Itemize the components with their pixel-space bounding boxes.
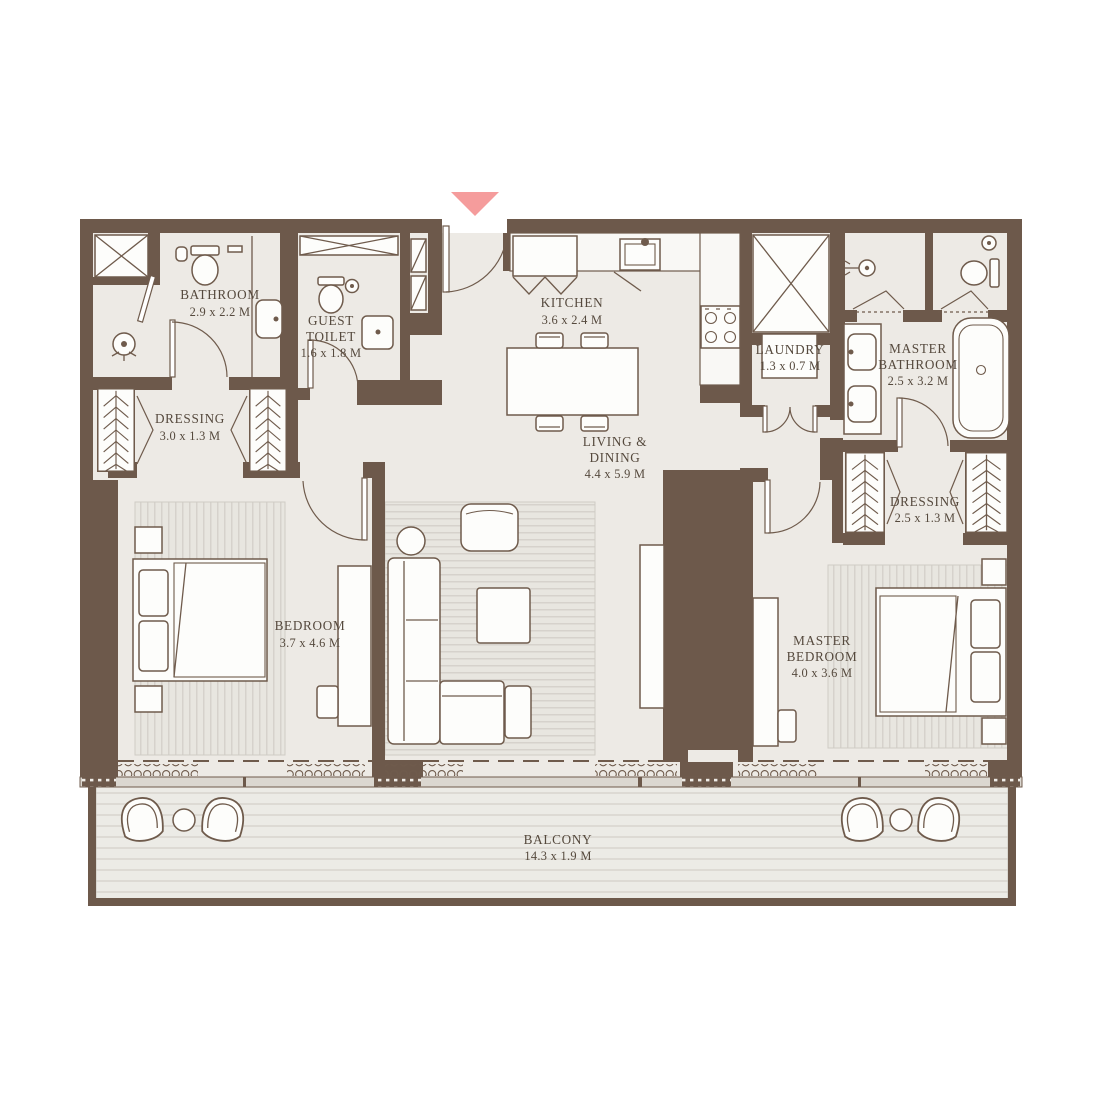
curtain-icon: [925, 764, 987, 776]
nightstand-icon: [982, 718, 1006, 744]
basin-icon: [848, 386, 876, 422]
bed-icon: [133, 559, 267, 681]
room-label-master-bathroom: MASTER: [889, 341, 947, 356]
patio-table-icon: [890, 809, 912, 831]
room-dims-bedroom: 3.7 x 4.6 M: [280, 636, 341, 650]
room-label-dressing-right: DRESSING: [890, 494, 960, 509]
room-label-balcony: BALCONY: [524, 832, 593, 847]
window-sill: [80, 777, 1022, 787]
round-sink-icon: [346, 280, 359, 293]
curtain-icon: [118, 764, 198, 776]
room-label-bedroom: BEDROOM: [275, 618, 346, 633]
room-label-master-bedroom: MASTER: [793, 633, 851, 648]
chair-icon: [536, 416, 563, 431]
shaft-icon: [753, 235, 829, 332]
shelf-icon: [228, 246, 242, 252]
closet-icon: [300, 236, 398, 255]
room-label-bathroom: BATHROOM: [180, 287, 260, 302]
toilet-icon: [318, 277, 344, 313]
patio-table-icon: [173, 809, 195, 831]
wardrobe-icon: [250, 389, 286, 471]
side-table-icon: [397, 527, 425, 555]
nightstand-icon: [135, 686, 162, 712]
room-dims-living: 4.4 x 5.9 M: [585, 467, 646, 481]
chair-icon: [536, 333, 563, 348]
room-label-guest-toilet: GUEST: [308, 313, 354, 328]
coffee-table-icon: [477, 588, 530, 643]
tv-console-icon: [640, 545, 664, 708]
room-label-living: LIVING &: [583, 434, 648, 449]
shower-door-icon: [256, 300, 282, 338]
bed-icon: [876, 588, 1006, 716]
curtain-icon: [738, 764, 817, 776]
corner-sink-icon: [982, 236, 996, 250]
floor-plan: BATHROOM 2.9 x 2.2 M GUEST TOILET 1.6 x …: [0, 0, 1100, 1100]
wardrobe-icon: [846, 453, 884, 533]
room-label-master-bedroom: BEDROOM: [787, 649, 858, 664]
chair-icon: [581, 333, 608, 348]
curtain-icon: [595, 764, 677, 776]
room-label-dressing-left: DRESSING: [155, 411, 225, 426]
nightstand-icon: [135, 527, 162, 553]
toilet-icon: [961, 259, 999, 287]
washbasin-icon: [362, 316, 393, 349]
console-icon: [753, 598, 778, 746]
basin-icon: [848, 334, 876, 370]
tv-wall-notch: [688, 750, 738, 762]
room-dims-dressing-left: 3.0 x 1.3 M: [160, 429, 221, 443]
toilet-icon: [191, 246, 219, 285]
room-dims-master-bathroom: 2.5 x 3.2 M: [888, 374, 949, 388]
room-dims-kitchen: 3.6 x 2.4 M: [542, 313, 603, 327]
room-dims-master-bedroom: 4.0 x 3.6 M: [792, 666, 853, 680]
armchair-icon: [461, 504, 518, 551]
bathroom-accessory-icon: [176, 247, 187, 261]
room-dims-dressing-right: 2.5 x 1.3 M: [895, 511, 956, 525]
chair-icon: [778, 710, 796, 742]
room-dims-laundry: 1.3 x 0.7 M: [760, 359, 821, 373]
room-label-living: DINING: [589, 450, 640, 465]
tv-wall: [663, 470, 753, 762]
nightstand-icon: [982, 559, 1006, 585]
room-label-guest-toilet: TOILET: [306, 329, 356, 344]
curtain-icon: [287, 764, 365, 776]
desk-chair-icon: [317, 686, 338, 718]
chair-icon: [581, 416, 608, 431]
desk-icon: [338, 566, 371, 726]
wardrobe-icon: [98, 389, 134, 471]
wardrobe-icon: [966, 453, 1007, 533]
room-label-laundry: LAUNDRY: [756, 342, 825, 357]
dining-table-icon: [507, 348, 638, 415]
room-dims-balcony: 14.3 x 1.9 M: [524, 849, 591, 863]
room-dims-bathroom: 2.9 x 2.2 M: [190, 305, 251, 319]
curtain-icon: [385, 764, 463, 776]
duct-icon: [95, 235, 148, 277]
room-label-kitchen: KITCHEN: [541, 295, 604, 310]
stove-icon: [701, 306, 740, 348]
bathtub-icon: [953, 318, 1009, 438]
room-label-master-bathroom: BATHROOM: [878, 357, 958, 372]
room-dims-guest-toilet: 1.6 x 1.8 M: [301, 346, 362, 360]
